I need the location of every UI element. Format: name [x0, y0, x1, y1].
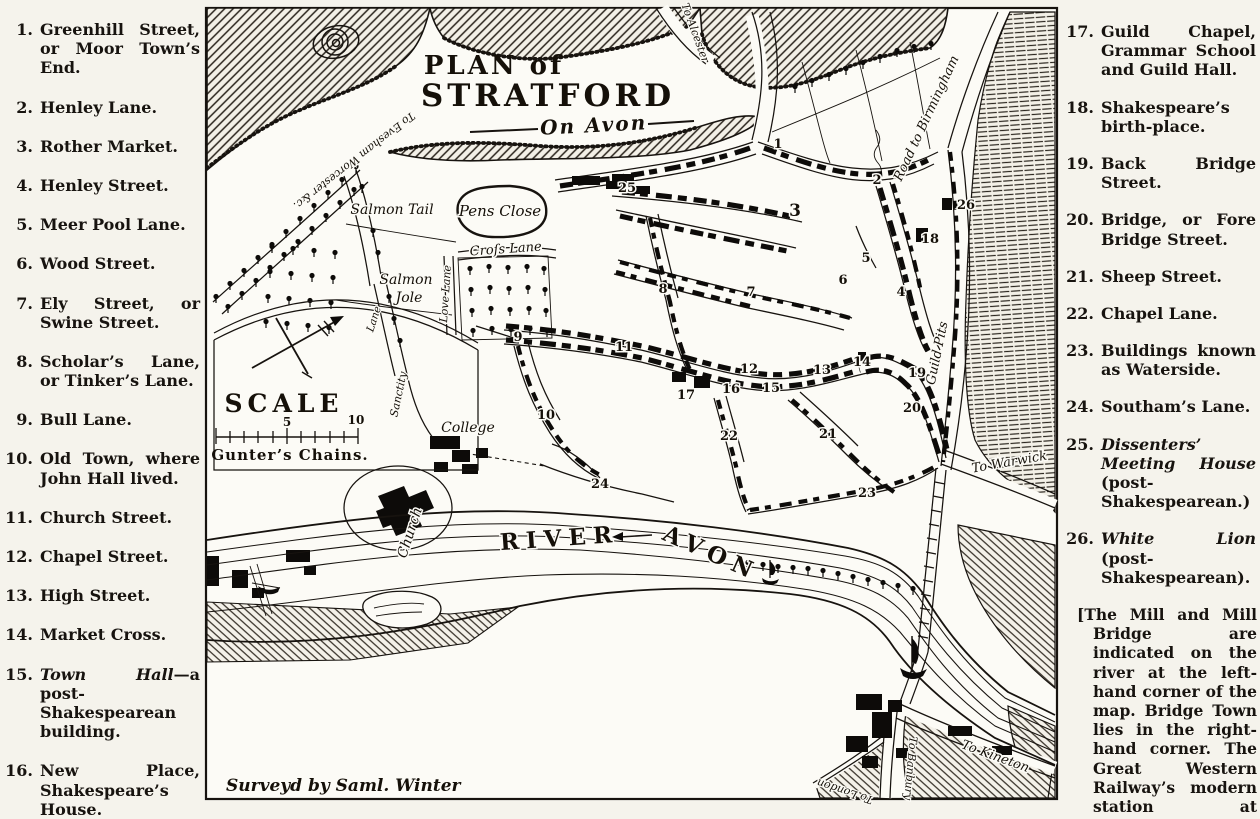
legend-item-number: 4.: [0, 176, 40, 195]
legend-item-text: Shakespeare’s birth-place.: [1101, 98, 1257, 136]
marker-20: 20: [903, 401, 921, 416]
marker-4: 4: [896, 285, 905, 300]
legend-item: 17.Guild Chapel, Grammar School and Guil…: [1061, 22, 1257, 80]
legend-item-number: 20.: [1061, 210, 1101, 248]
legend-item-number: 22.: [1061, 304, 1101, 323]
legend-item: 22.Chapel Lane.: [1061, 304, 1257, 323]
legend-item-number: 3.: [0, 137, 40, 156]
label-gunters-chains: Gunter’s Chains.: [211, 446, 368, 464]
legend-item: 3.Rother Market.: [0, 137, 201, 156]
legend-item-number: 17.: [1061, 22, 1101, 80]
marker-25: 25: [618, 181, 636, 196]
legend-item: 2.Henley Lane.: [0, 98, 201, 117]
legend-item: 1.Greenhill Street, or Moor Town’s End.: [0, 20, 201, 78]
legend-item-text: Back Bridge Street.: [1101, 154, 1257, 192]
legend-item-text: Southam’s Lane.: [1101, 397, 1257, 416]
legend-item-text: Henley Street.: [40, 176, 201, 195]
legend-item: 15.Town Hall—a post-Shakespearean buildi…: [0, 665, 201, 742]
legend-item-number: 13.: [0, 586, 40, 605]
legend-item-number: 12.: [0, 547, 40, 566]
surveyor-signature: Surveyd by Saml. Winter: [226, 776, 462, 796]
label-pens-close: Pens Close: [458, 202, 541, 220]
legend-item-number: 1.: [0, 20, 40, 78]
legend-item: 12.Chapel Street.: [0, 547, 201, 566]
legend-item-text: Greenhill Street, or Moor Town’s End.: [40, 20, 201, 78]
legend-item-text: Dissenters’ Meeting House (post-Shakespe…: [1101, 435, 1257, 512]
legend-item-number: 11.: [0, 508, 40, 527]
marker-6: 6: [838, 273, 847, 288]
label-salmon: Salmon: [379, 272, 432, 288]
label-college: College: [441, 420, 495, 436]
marker-23: 23: [858, 486, 876, 501]
marker-5: 5: [861, 251, 870, 266]
legend-item-number: 15.: [0, 665, 40, 742]
legend-item-number: 6.: [0, 254, 40, 273]
label-jole: Jole: [393, 290, 423, 306]
marker-12: 12: [740, 362, 758, 377]
legend-item-text: Guild Chapel, Grammar School and Guild H…: [1101, 22, 1257, 80]
marker-1: 1: [773, 137, 782, 152]
legend-item-number: 9.: [0, 410, 40, 429]
legend-item-number: 2.: [0, 98, 40, 117]
legend-item: 8.Scholar’s Lane, or Tinker’s Lane.: [0, 352, 201, 390]
legend-item-text: Bridge, or Fore Bridge Street.: [1101, 210, 1257, 248]
legend-item-text: White Lion (post-Shakespearean).: [1101, 529, 1257, 587]
scale-tick-5: 5: [283, 415, 291, 429]
map-title-line2: STRATFORD: [421, 78, 675, 114]
marker-15: 15: [762, 381, 780, 396]
legend-item: 23.Buildings known as Waterside.: [1061, 341, 1257, 379]
marker-13: 13: [813, 363, 831, 378]
legend-item: 21.Sheep Street.: [1061, 267, 1257, 286]
scale-tick-10: 10: [348, 413, 365, 427]
legend-item-number: 24.: [1061, 397, 1101, 416]
legend-left: 1.Greenhill Street, or Moor Town’s End. …: [0, 0, 205, 819]
marker-11: 11: [615, 340, 633, 355]
label-scale: SCALE: [225, 389, 344, 418]
legend-item: 10.Old Town, where John Hall lived.: [0, 449, 201, 487]
legend-item: 25.Dissenters’ Meeting House (post-Shake…: [1061, 435, 1257, 512]
legend-item-number: 26.: [1061, 529, 1101, 587]
marker-8: 8: [658, 282, 667, 297]
page: PLAN of STRATFORD On Avon Salmon Tail Pe…: [0, 0, 1260, 819]
legend-item-text: Old Town, where John Hall lived.: [40, 449, 201, 487]
marker-3: 3: [789, 201, 801, 221]
legend-item: 18.Shakespeare’s birth-place.: [1061, 98, 1257, 136]
legend-item-text: Town Hall—a post-Shakespearean building.: [40, 665, 201, 742]
legend-item-text: Market Cross.: [40, 625, 201, 644]
legend-item-text: High Street.: [40, 586, 201, 605]
legend-item: 11.Church Street.: [0, 508, 201, 527]
label-salmon-tail: Salmon Tail: [350, 202, 433, 218]
marker-24: 24: [591, 477, 609, 492]
legend-item-number: 25.: [1061, 435, 1101, 512]
legend-item-number: 16.: [0, 761, 40, 819]
marker-14: 14: [853, 355, 871, 370]
legend-item-text: Henley Lane.: [40, 98, 201, 117]
legend-item-text: Chapel Street.: [40, 547, 201, 566]
legend-item-number: 10.: [0, 449, 40, 487]
legend-item: 19.Back Bridge Street.: [1061, 154, 1257, 192]
marker-22: 22: [720, 429, 738, 444]
legend-item: 9.Bull Lane.: [0, 410, 201, 429]
legend-item-number: 21.: [1061, 267, 1101, 286]
marker-2: 2: [872, 173, 881, 188]
legend-item-number: 14.: [0, 625, 40, 644]
legend-note: [The Mill and Mill Bridge are indicated …: [1077, 605, 1257, 819]
marker-7: 7: [746, 285, 755, 300]
legend-item: 4.Henley Street.: [0, 176, 201, 195]
marker-26: 26: [957, 198, 975, 213]
legend-item-number: 18.: [1061, 98, 1101, 136]
legend-item-number: 8.: [0, 352, 40, 390]
legend-right: 17.Guild Chapel, Grammar School and Guil…: [1059, 0, 1260, 819]
marker-21: 21: [819, 427, 837, 442]
legend-item-number: 7.: [0, 294, 40, 332]
legend-item-text: Scholar’s Lane, or Tinker’s Lane.: [40, 352, 201, 390]
legend-item: 24.Southam’s Lane.: [1061, 397, 1257, 416]
legend-item-number: 23.: [1061, 341, 1101, 379]
legend-item: 13.High Street.: [0, 586, 201, 605]
legend-item-text: New Place, Shakespeare’s House.: [40, 761, 201, 819]
marker-19: 19: [908, 366, 926, 381]
legend-item: 16.New Place, Shakespeare’s House.: [0, 761, 201, 819]
legend-item-text: Ely Street, or Swine Street.: [40, 294, 201, 332]
legend-item-text: Rother Market.: [40, 137, 201, 156]
legend-item: 20.Bridge, or Fore Bridge Street.: [1061, 210, 1257, 248]
legend-item: 26.White Lion (post-Shakespearean).: [1061, 529, 1257, 587]
legend-item-text: Meer Pool Lane.: [40, 215, 201, 234]
legend-item: 5.Meer Pool Lane.: [0, 215, 201, 234]
marker-9: 9: [513, 330, 522, 345]
legend-item-text: Bull Lane.: [40, 410, 201, 429]
legend-item-text: Church Street.: [40, 508, 201, 527]
legend-item-text: Chapel Lane.: [1101, 304, 1257, 323]
river-island: [363, 591, 441, 628]
legend-item-text: Wood Street.: [40, 254, 201, 273]
marker-17: 17: [677, 388, 695, 403]
map-title-line1: PLAN of: [424, 51, 564, 81]
legend-item-text: Sheep Street.: [1101, 267, 1257, 286]
legend-item: 6.Wood Street.: [0, 254, 201, 273]
legend-item-number: 5.: [0, 215, 40, 234]
legend-item-text: Buildings known as Waterside.: [1101, 341, 1257, 379]
legend-item: 7.Ely Street, or Swine Street.: [0, 294, 201, 332]
marker-10: 10: [537, 408, 555, 423]
legend-item-number: 19.: [1061, 154, 1101, 192]
legend-item: 14.Market Cross.: [0, 625, 201, 644]
marker-18: 18: [921, 232, 939, 247]
marker-16: 16: [722, 382, 740, 397]
